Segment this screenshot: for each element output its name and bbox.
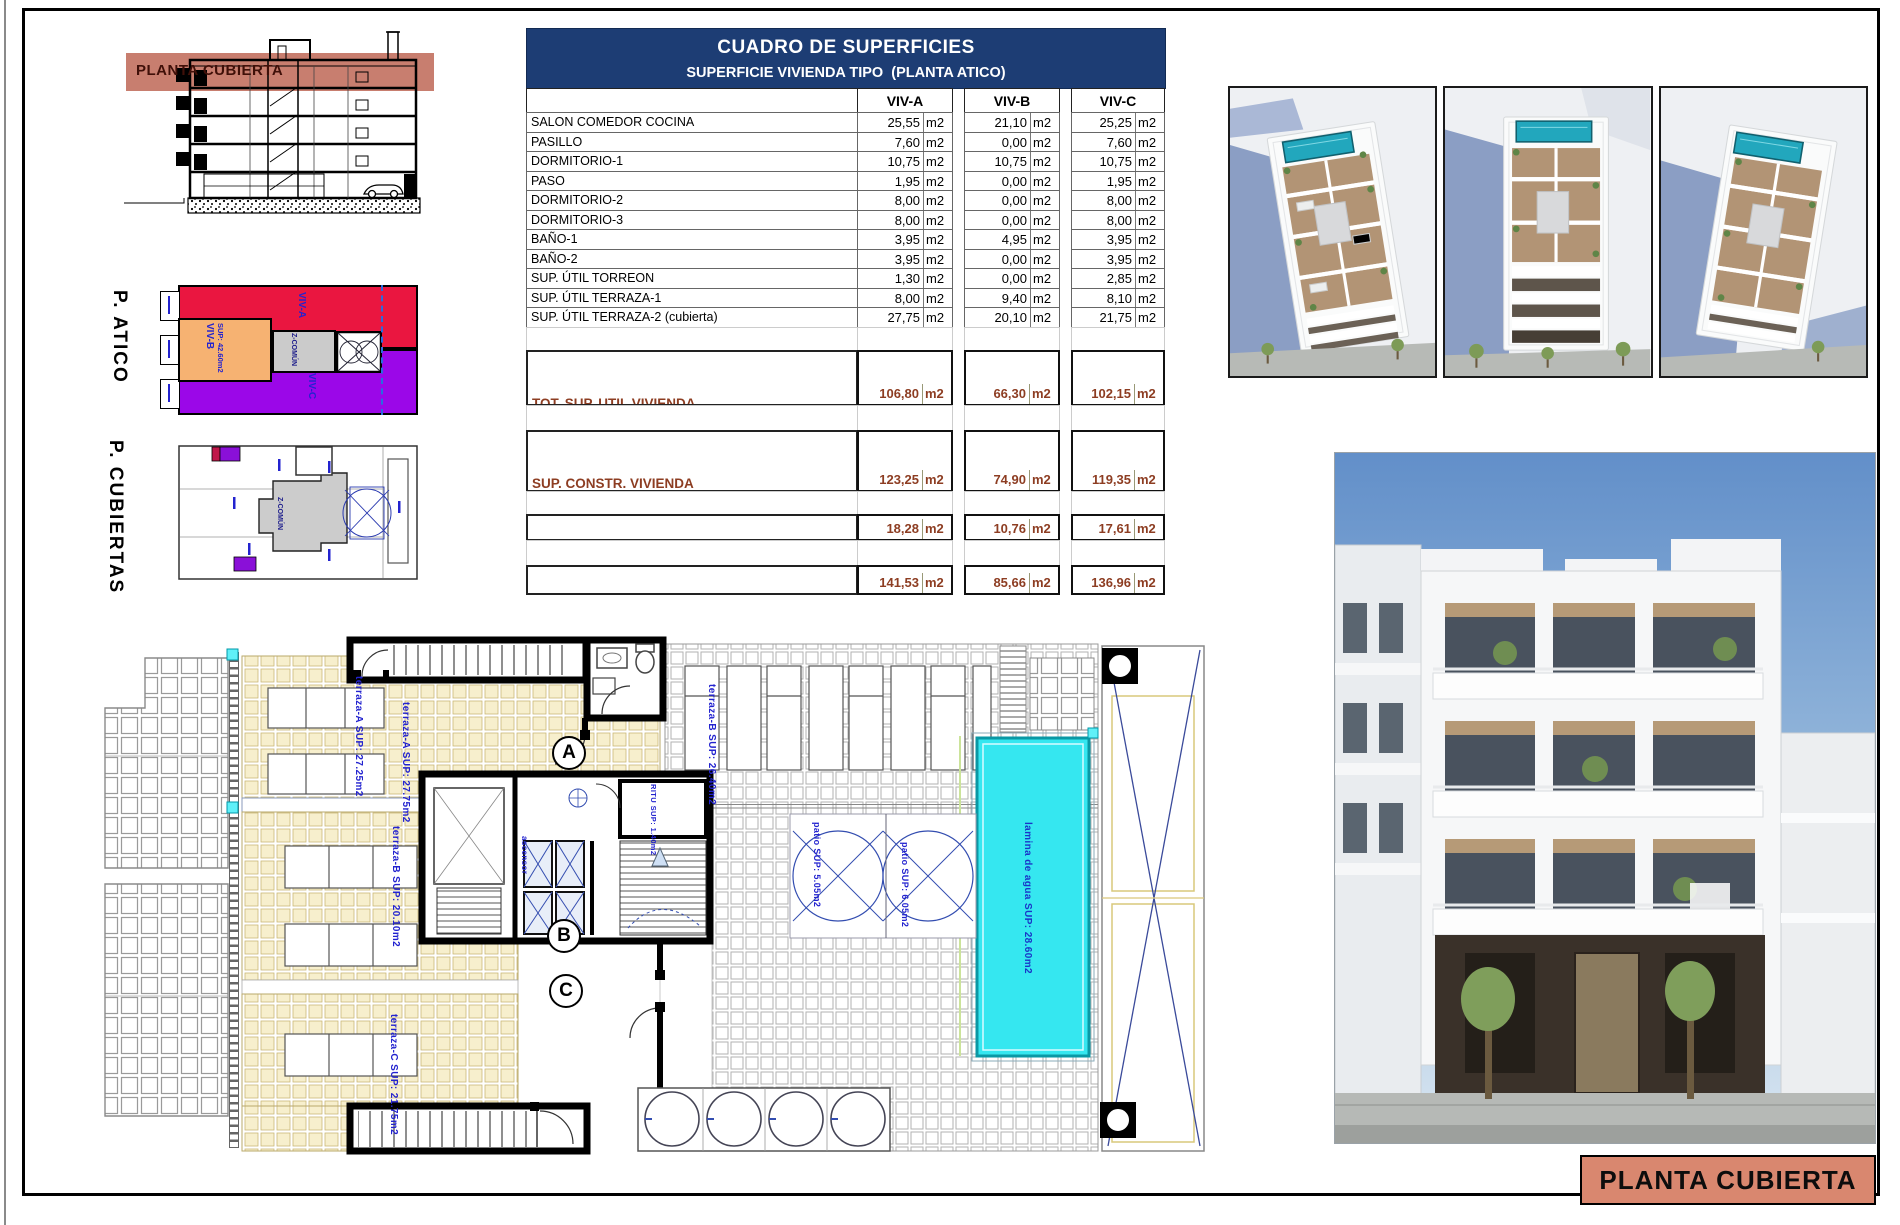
summary-value-a: 123,25m2 [857, 430, 953, 492]
row-value-b: 0,00m2 [964, 190, 1060, 211]
row-value-b: 20,10m2 [964, 307, 1060, 328]
row-value-c: 21,75m2 [1071, 307, 1165, 328]
summary-label-line1: SUP. CONSTR. VIVIENDA [532, 474, 856, 492]
value-number: 1,95 [858, 172, 923, 191]
summary-label: SUP. CONSTR. VIVIENDA (sin E.Comunes, te… [526, 430, 858, 492]
aerial-render-1 [1228, 86, 1437, 378]
value-number: 4,95 [965, 230, 1030, 249]
section-band-label: PLANTA CUBIERTA [136, 62, 283, 79]
summary-row-constr: SUP. CONSTR. VIVIENDA (sin E.Comunes, te… [526, 430, 1166, 492]
sun-loungers [685, 666, 991, 770]
gray-terrace-upper [105, 658, 228, 868]
row-label: SALON COMEDOR COCINA [526, 112, 858, 133]
unit-label: m2 [1134, 573, 1163, 593]
value-number: 10,75 [1072, 152, 1135, 171]
row-value-b: 0,00m2 [964, 249, 1060, 270]
value-number: 0,00 [965, 250, 1030, 269]
row-value-c: 8,10m2 [1071, 288, 1165, 309]
value-number: 8,10 [1072, 289, 1135, 308]
label-patio-2: patio SUP: 6.05m2 [900, 842, 910, 927]
value-number: 27,75 [858, 308, 923, 327]
row-label: DORMITORIO-1 [526, 151, 858, 172]
row-value-b: 0,00m2 [964, 171, 1060, 192]
unit-label: m2 [922, 573, 951, 593]
value-number: 3,95 [858, 230, 923, 249]
label-ascensor: ascensor [520, 836, 529, 874]
table-header: CUADRO DE SUPERFICIES SUPERFICIE VIVIEND… [526, 28, 1166, 89]
spacer-row [526, 540, 1166, 566]
label-terraza-a1: terraza-A SUP: 27.25m2 [353, 676, 364, 797]
value-number: 17,61 [1073, 519, 1134, 539]
row-value-a: 27,75m2 [857, 307, 953, 328]
row-label: SUP. ÚTIL TERRAZA-2 (cubierta) [526, 307, 858, 328]
row-value-b: 9,40m2 [964, 288, 1060, 309]
column-header-viv-c: VIV-C [1071, 88, 1165, 113]
value-number: 3,95 [1072, 230, 1135, 249]
summary-value-c: 136,96m2 [1071, 565, 1165, 595]
unit-label: m2 [1030, 289, 1059, 308]
dimension-notch [160, 291, 180, 321]
unit-label: m2 [923, 113, 952, 132]
value-number: 0,00 [965, 269, 1030, 288]
value-number: 8,00 [858, 289, 923, 308]
gray-terrace-lower [105, 884, 228, 1116]
unit-label: m2 [1029, 470, 1058, 490]
row-value-c: 8,00m2 [1071, 210, 1165, 231]
row-value-b: 21,10m2 [964, 112, 1060, 133]
summary-label: TOT. SUP. UTIL VIVIENDA (Terrazas cubier… [526, 350, 858, 406]
stairs-top [350, 640, 586, 680]
surface-table: CUADRO DE SUPERFICIES SUPERFICIE VIVIEND… [526, 28, 1166, 595]
cubiertas-plan-art [178, 445, 418, 580]
value-number: 123,25 [859, 470, 922, 490]
corner-cell [526, 88, 858, 113]
summary-label: SUPERFIIE CONSTRUIDA TOTAL [526, 565, 858, 595]
spacer-row [526, 327, 1166, 351]
value-number: 106,80 [859, 384, 922, 404]
label-pool: lamina de agua SUP: 28.60m2 [1022, 822, 1033, 974]
row-value-c: 3,95m2 [1071, 229, 1165, 250]
unit-label: m2 [1134, 519, 1163, 539]
zone-comun [272, 330, 336, 373]
value-number: 25,25 [1072, 113, 1135, 132]
value-number: 25,55 [858, 113, 923, 132]
value-number: 85,66 [966, 573, 1029, 593]
unit-label: m2 [922, 470, 951, 490]
title-block: PLANTA CUBIERTA [1580, 1155, 1876, 1205]
table-row: BAÑO-1 3,95m2 4,95m2 3,95m2 [526, 229, 1166, 250]
row-label: BAÑO-2 [526, 249, 858, 270]
zone-label-viv-b: VIV-B [204, 323, 215, 373]
value-number: 136,96 [1073, 573, 1134, 593]
table-row: DORMITORIO-1 10,75m2 10,75m2 10,75m2 [526, 151, 1166, 172]
value-number: 3,95 [1072, 250, 1135, 269]
row-value-c: 2,85m2 [1071, 268, 1165, 289]
marker-b: B [547, 919, 581, 953]
summary-value-b: 66,30m2 [964, 350, 1060, 406]
unit-label: m2 [1030, 191, 1059, 210]
elevator-shaft-icon [336, 331, 382, 373]
summary-row-comunes: SUP. CONSTRUIDA COMUNES 18,28m2 10,76m2 … [526, 514, 1166, 541]
sheet-edge-line [4, 0, 6, 1225]
value-number: 8,00 [858, 211, 923, 230]
zone-label-viv-a: VIV-A [296, 292, 307, 318]
label-terraza-b1: terraza-B SUP: 26.40m2 [706, 684, 717, 805]
unit-label: m2 [1135, 230, 1164, 249]
label-ritu: RITU SUP: 1.40m2 [649, 784, 658, 855]
row-value-b: 10,75m2 [964, 151, 1060, 172]
section-drawing-art [118, 22, 440, 236]
value-number: 8,00 [1072, 191, 1135, 210]
label-terraza-b2: terraza-B SUP: 20.10m2 [390, 826, 401, 947]
row-label: BAÑO-1 [526, 229, 858, 250]
column-header-row: VIV-A VIV-B VIV-C [526, 88, 1166, 113]
row-value-c: 25,25m2 [1071, 112, 1165, 133]
unit-label: m2 [1135, 113, 1164, 132]
row-value-a: 8,00m2 [857, 190, 953, 211]
summary-value-c: 102,15m2 [1071, 350, 1165, 406]
row-label: PASILLO [526, 132, 858, 153]
value-number: 20,10 [965, 308, 1030, 327]
unit-label: m2 [1135, 191, 1164, 210]
value-number: 8,00 [1072, 211, 1135, 230]
unit-label: m2 [1135, 250, 1164, 269]
value-number: 119,35 [1073, 470, 1134, 490]
summary-value-b: 85,66m2 [964, 565, 1060, 595]
row-value-c: 1,95m2 [1071, 171, 1165, 192]
zone-label-viv-c: VIV-C [306, 373, 317, 399]
unit-label: m2 [923, 269, 952, 288]
stair-core [422, 774, 710, 941]
zone-viv-b [178, 318, 272, 382]
unit-label: m2 [923, 230, 952, 249]
floor-plan-art [100, 636, 1210, 1161]
summary-value-b: 74,90m2 [964, 430, 1060, 492]
marker-c: C [549, 974, 583, 1008]
section-drawing: PLANTA CUBIERTA [118, 22, 440, 236]
unit-label: m2 [1135, 211, 1164, 230]
row-value-a: 8,00m2 [857, 288, 953, 309]
row-label: DORMITORIO-2 [526, 190, 858, 211]
row-value-b: 0,00m2 [964, 132, 1060, 153]
unit-label: m2 [1135, 269, 1164, 288]
row-value-c: 10,75m2 [1071, 151, 1165, 172]
unit-label: m2 [922, 384, 951, 404]
value-number: 18,28 [859, 519, 922, 539]
unit-label: m2 [1029, 573, 1058, 593]
table-row: DORMITORIO-3 8,00m2 0,00m2 8,00m2 [526, 210, 1166, 231]
unit-label: m2 [923, 211, 952, 230]
value-number: 7,60 [1072, 133, 1135, 152]
summary-value-b: 10,76m2 [964, 514, 1060, 541]
row-value-b: 4,95m2 [964, 229, 1060, 250]
table-row: SUP. ÚTIL TERRAZA-1 8,00m2 9,40m2 8,10m2 [526, 288, 1166, 309]
label-terraza-c: terraza-C SUP: 21.75m2 [388, 1014, 399, 1135]
aerial-render-2 [1443, 86, 1652, 378]
cubiertas-plan-title: P. CUBIERTAS [104, 440, 126, 595]
unit-label: m2 [923, 172, 952, 191]
unit-label: m2 [1135, 289, 1164, 308]
cubiertas-plan: Z-COMÚN [178, 445, 418, 580]
summary-value-a: 141,53m2 [857, 565, 953, 595]
zone-label-viv-b-sup: SUP: 42.60m2 [216, 323, 225, 373]
label-terraza-a2: terraza-A SUP: 27.75m2 [400, 702, 411, 823]
value-number: 141,53 [859, 573, 922, 593]
unit-label: m2 [1030, 133, 1059, 152]
table-subtitle: SUPERFICIE VIVIENDA TIPO (PLANTA ATICO) [527, 59, 1165, 88]
table-title: CUADRO DE SUPERFICIES [527, 29, 1165, 59]
value-number: 0,00 [965, 133, 1030, 152]
summary-value-c: 119,35m2 [1071, 430, 1165, 492]
bathroom [587, 640, 663, 718]
summary-value-a: 18,28m2 [857, 514, 953, 541]
table-row: PASO 1,95m2 0,00m2 1,95m2 [526, 171, 1166, 192]
aerial-renders-row [1228, 86, 1868, 378]
row-value-a: 3,95m2 [857, 229, 953, 250]
value-number: 0,00 [965, 211, 1030, 230]
aerial-render-3 [1659, 86, 1868, 378]
unit-label: m2 [1135, 308, 1164, 327]
label-patio-1: patio SUP: 5.05m2 [812, 822, 822, 907]
row-label: DORMITORIO-3 [526, 210, 858, 231]
unit-label: m2 [1135, 133, 1164, 152]
row-label: SUP. ÚTIL TORREON [526, 268, 858, 289]
unit-label: m2 [1029, 519, 1058, 539]
value-number: 74,90 [966, 470, 1029, 490]
row-value-c: 8,00m2 [1071, 190, 1165, 211]
marker-a: A [552, 736, 586, 770]
unit-label: m2 [1134, 470, 1163, 490]
water-tanks [638, 1088, 890, 1151]
row-value-a: 25,55m2 [857, 112, 953, 133]
value-number: 21,75 [1072, 308, 1135, 327]
lightwell-strip [1100, 646, 1204, 1151]
row-label: SUP. ÚTIL TERRAZA-1 [526, 288, 858, 309]
value-number: 3,95 [858, 250, 923, 269]
row-value-a: 8,00m2 [857, 210, 953, 231]
row-value-b: 0,00m2 [964, 210, 1060, 231]
unit-label: m2 [1134, 384, 1163, 404]
value-number: 102,15 [1073, 384, 1134, 404]
value-number: 10,75 [858, 152, 923, 171]
car-icon [364, 185, 403, 198]
row-value-a: 1,95m2 [857, 171, 953, 192]
summary-value-a: 106,80m2 [857, 350, 953, 406]
unit-label: m2 [1030, 308, 1059, 327]
atico-plan-title: P. ATICO [108, 290, 130, 400]
value-number: 1,30 [858, 269, 923, 288]
value-number: 0,00 [965, 191, 1030, 210]
summary-value-c: 17,61m2 [1071, 514, 1165, 541]
summary-label: SUP. CONSTRUIDA COMUNES [526, 514, 858, 541]
row-value-c: 3,95m2 [1071, 249, 1165, 270]
value-number: 21,10 [965, 113, 1030, 132]
row-value-c: 7,60m2 [1071, 132, 1165, 153]
table-row: PASILLO 7,60m2 0,00m2 7,60m2 [526, 132, 1166, 153]
table-row: DORMITORIO-2 8,00m2 0,00m2 8,00m2 [526, 190, 1166, 211]
unit-label: m2 [923, 289, 952, 308]
table-row: SALON COMEDOR COCINA 25,55m2 21,10m2 25,… [526, 112, 1166, 133]
unit-label: m2 [923, 308, 952, 327]
unit-label: m2 [1030, 230, 1059, 249]
atico-plan: VIV-A VIV-B SUP: 42.60m2 Z-COMÚN VIV-C [178, 285, 418, 415]
dimension-notch [160, 335, 180, 365]
unit-label: m2 [1135, 152, 1164, 171]
facade-render [1334, 452, 1876, 1144]
unit-label: m2 [923, 250, 952, 269]
floor-plan: terraza-A SUP: 27.25m2 terraza-A SUP: 27… [100, 636, 1210, 1161]
row-value-a: 10,75m2 [857, 151, 953, 172]
unit-label: m2 [1030, 113, 1059, 132]
value-number: 10,76 [966, 519, 1029, 539]
unit-label: m2 [922, 519, 951, 539]
summary-row-total: SUPERFIIE CONSTRUIDA TOTAL 141,53m2 85,6… [526, 565, 1166, 595]
row-value-a: 7,60m2 [857, 132, 953, 153]
value-number: 1,95 [1072, 172, 1135, 191]
table-row: BAÑO-2 3,95m2 0,00m2 3,95m2 [526, 249, 1166, 270]
table-row: SUP. ÚTIL TERRAZA-2 (cubierta) 27,75m2 2… [526, 307, 1166, 328]
unit-label: m2 [1030, 250, 1059, 269]
unit-label: m2 [1030, 269, 1059, 288]
spacer-row [526, 405, 1166, 431]
value-number: 10,75 [965, 152, 1030, 171]
unit-label: m2 [1030, 172, 1059, 191]
axis-dashed-line [381, 285, 383, 415]
row-label: PASO [526, 171, 858, 192]
unit-label: m2 [923, 152, 952, 171]
unit-label: m2 [923, 191, 952, 210]
zone-label-comun: Z-COMÚN [290, 333, 297, 366]
dimension-notch [160, 379, 180, 409]
stairs-bottom [350, 1102, 587, 1151]
row-value-a: 3,95m2 [857, 249, 953, 270]
table-row: SUP. ÚTIL TORREON 1,30m2 0,00m2 2,85m2 [526, 268, 1166, 289]
value-number: 66,30 [966, 384, 1029, 404]
value-number: 0,00 [965, 172, 1030, 191]
zone-label-comun: Z-COMÚN [276, 497, 283, 530]
unit-label: m2 [1029, 384, 1058, 404]
spacer-row [526, 491, 1166, 515]
row-value-a: 1,30m2 [857, 268, 953, 289]
column-header-viv-b: VIV-B [964, 88, 1060, 113]
unit-label: m2 [1030, 152, 1059, 171]
value-number: 9,40 [965, 289, 1030, 308]
column-header-viv-a: VIV-A [857, 88, 953, 113]
row-value-b: 0,00m2 [964, 268, 1060, 289]
unit-label: m2 [1135, 172, 1164, 191]
value-number: 7,60 [858, 133, 923, 152]
unit-label: m2 [1030, 211, 1059, 230]
unit-label: m2 [923, 133, 952, 152]
summary-row-util: TOT. SUP. UTIL VIVIENDA (Terrazas cubier… [526, 350, 1166, 406]
value-number: 2,85 [1072, 269, 1135, 288]
value-number: 8,00 [858, 191, 923, 210]
drawing-sheet: PLANTA CUBIERTA P. ATICO VIV-A VIV-B SUP… [0, 0, 1900, 1225]
pool [977, 738, 1089, 1056]
